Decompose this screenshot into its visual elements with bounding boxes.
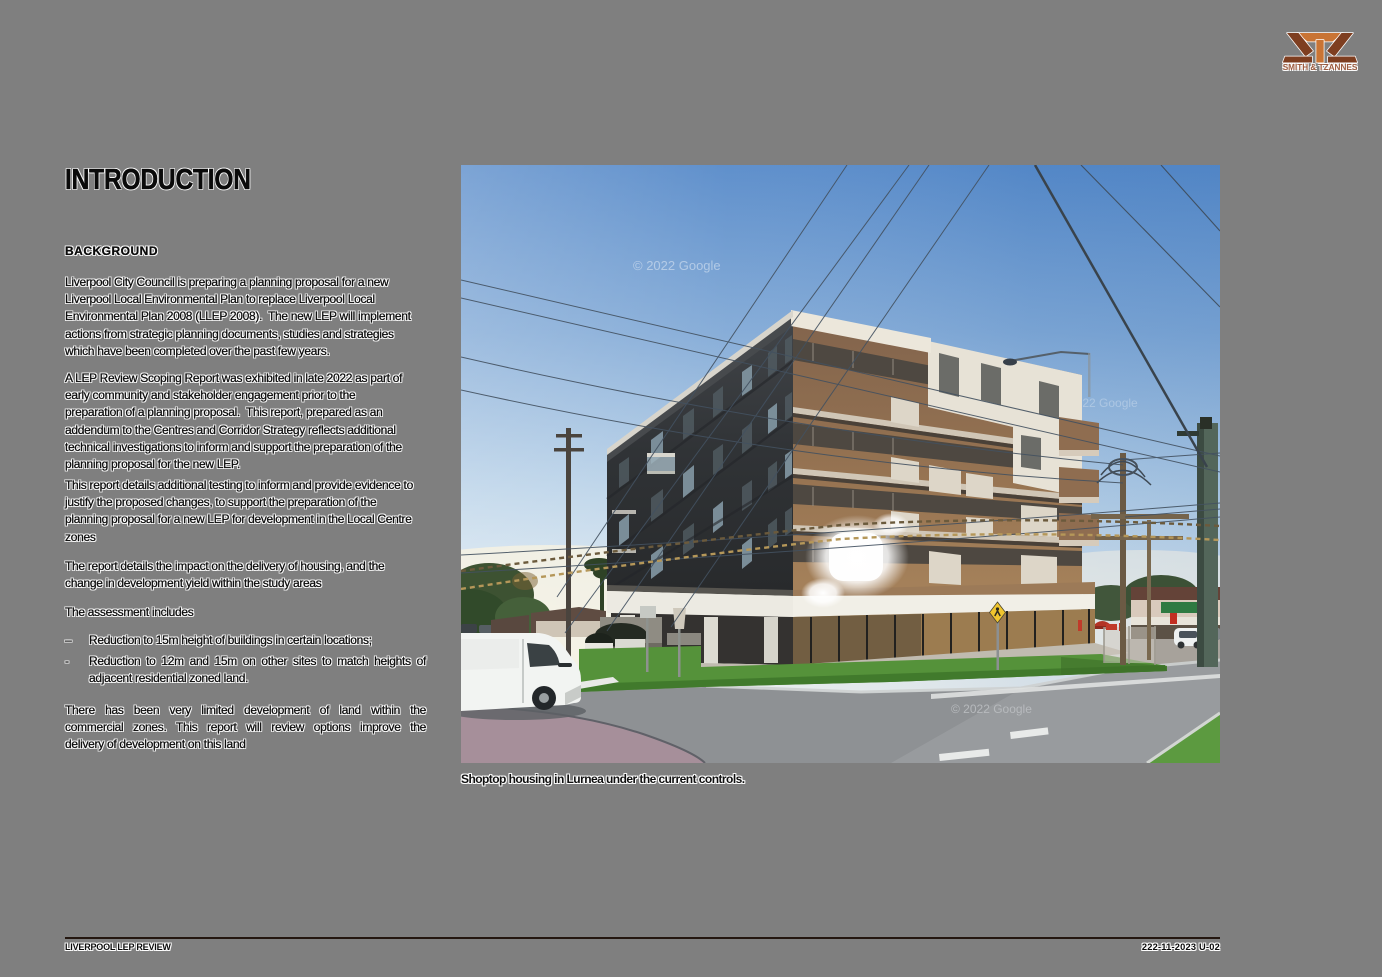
svg-text:© 2022 Google: © 2022 Google: [633, 258, 721, 273]
svg-text:© 2022 Google: © 2022 Google: [951, 702, 1032, 716]
